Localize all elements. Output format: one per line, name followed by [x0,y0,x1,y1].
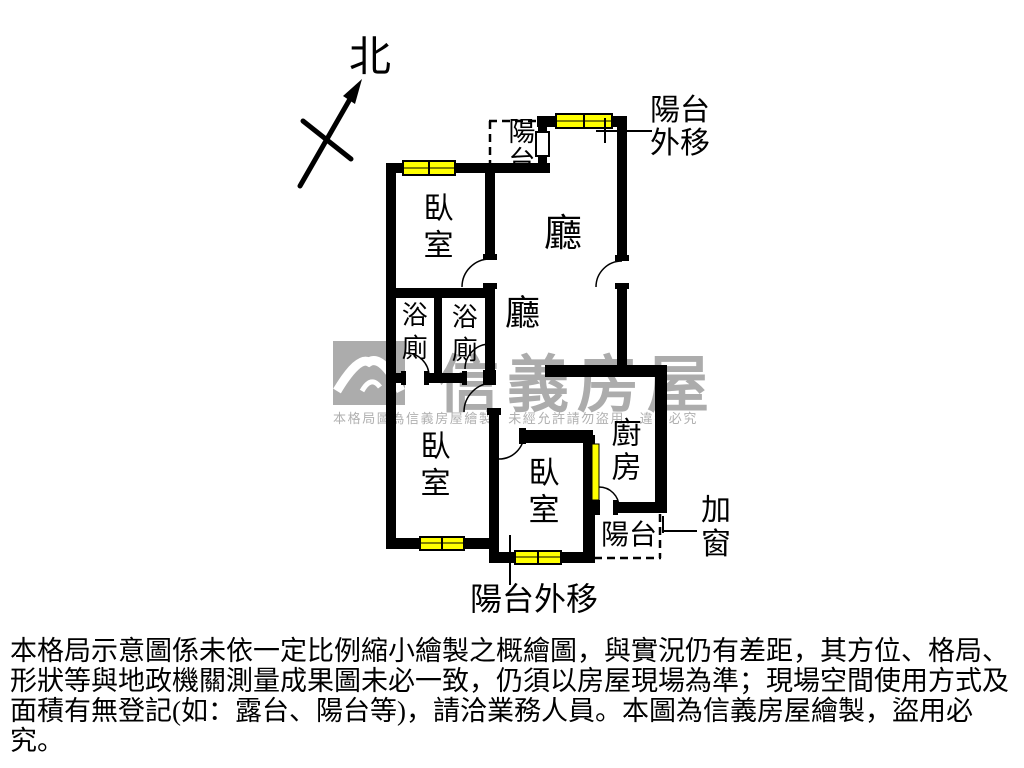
dashed-balcony-outlines [489,121,661,558]
room-label-balcony-lower: 陽台 [601,521,657,550]
annotation-balcony-moved-out-top: 陽台外移 [650,94,720,160]
window-living-top [556,114,612,128]
disclaimer-line-1: 本格局示意圖係未依一定比例縮小繪製之概繪圖，與實況仍有差距，其方位、格局、 [10,636,1018,666]
window-bedroom-top [403,161,455,175]
room-label-living-lower: 廳 [505,296,540,333]
floor-plan-page: 信義房屋 本格局圖為信義房屋繪製，未經允許請勿盜用，違者必究 [0,0,1024,768]
room-label-bedroom-bottom-left: 臥室 [416,430,448,504]
north-arrow-icon [300,79,362,186]
window-kitchen-side [592,444,599,500]
disclaimer-line-2: 形狀等與地政機關測量成果圖未必一致，仍須以房屋現場為準；現場空間使用方式及 [10,666,1018,696]
disclaimer-line-3: 面積有無登記(如：露台、陽台等)，請洽業務人員。本圖為信義房屋繪製，盜用必究。 [10,696,1018,756]
door-hallway [464,383,493,412]
window-bedroom-left-bottom [420,537,464,550]
room-label-bathroom-left: 浴廁 [399,301,426,367]
room-label-bedroom-top: 臥室 [419,192,451,266]
room-label-bathroom-right: 浴廁 [449,303,476,369]
disclaimer-text: 本格局示意圖係未依一定比例縮小繪製之概繪圖，與實況仍有差距，其方位、格局、 形狀… [10,636,1018,756]
room-label-kitchen: 廚房 [607,417,639,485]
window-balcony-side-white [536,132,549,156]
north-label: 北 [349,36,391,80]
room-label-bedroom-bottom-middle: 臥室 [524,456,557,530]
room-label-living-upper: 廳 [544,215,582,255]
annotation-added-window: 加窗 [701,494,737,562]
door-bedroom-top [462,259,490,287]
room-label-balcony-upper: 陽台 [505,117,533,175]
annotation-balcony-moved-out-bottom: 陽台外移 [470,583,598,617]
window-bedroom-mid-bottom [515,551,561,564]
